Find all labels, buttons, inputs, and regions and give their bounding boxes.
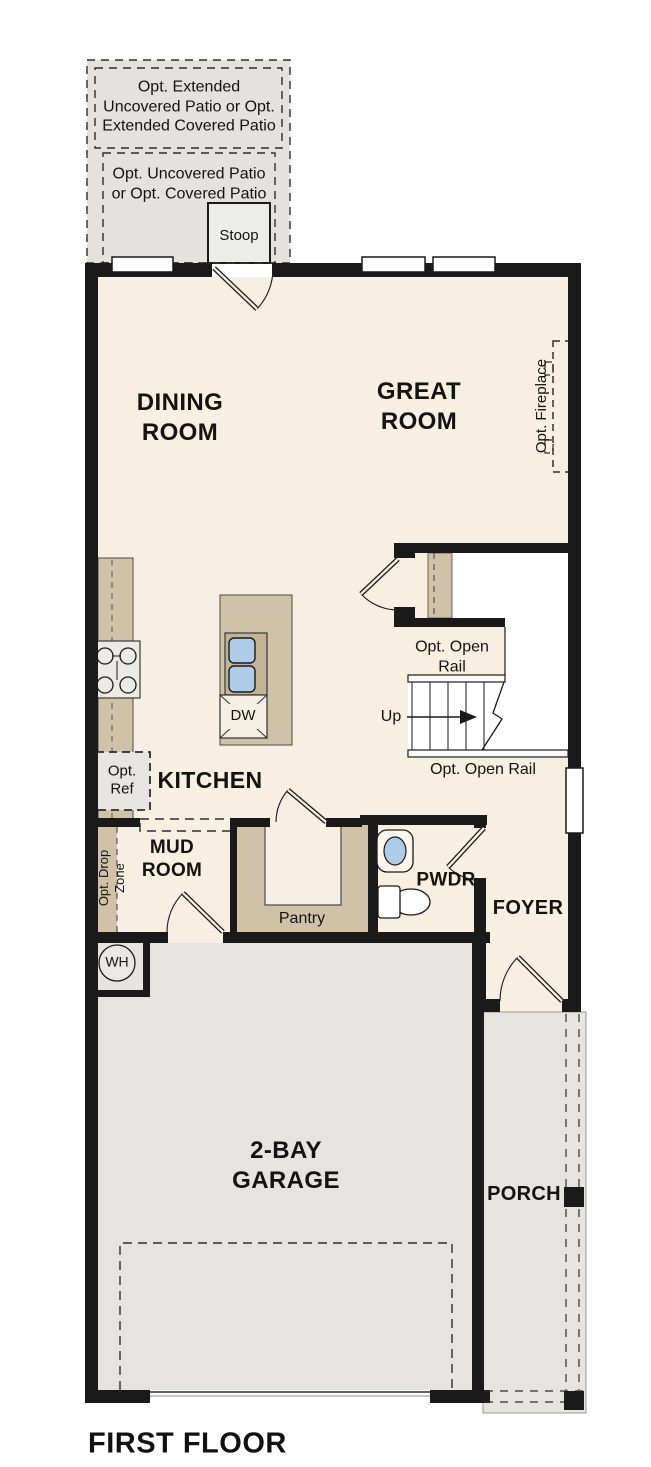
up-label: Up: [381, 707, 401, 727]
opt-drop-zone-label: Opt. Drop Zone: [96, 850, 128, 906]
pwdr-label: PWDR: [416, 868, 475, 891]
great-room-label: GREAT ROOM: [377, 377, 461, 437]
stairwell-void: [505, 553, 568, 757]
window: [362, 257, 425, 272]
porch-column: [564, 1187, 584, 1207]
stair-rail-lower: [408, 750, 568, 757]
foyer-label: FOYER: [493, 896, 563, 920]
sink-basin: [229, 666, 255, 692]
stove: [93, 641, 140, 698]
opt-patio-label: Opt. Uncovered Patio or Opt. Covered Pat…: [112, 164, 267, 203]
porch-label: PORCH: [487, 1182, 561, 1206]
kitchen-label: KITCHEN: [157, 766, 262, 794]
water-heater-label: WH: [105, 953, 128, 970]
floor-plan: Opt. Extended Uncovered Patio or Opt. Ex…: [0, 0, 651, 1467]
window: [112, 257, 173, 272]
sink-basin: [229, 638, 255, 663]
pantry-label: Pantry: [279, 909, 325, 929]
opt-ref-label: Opt. Ref: [108, 763, 136, 800]
stoop-label: Stoop: [219, 227, 258, 245]
opt-fireplace-label: Opt. Fireplace: [533, 359, 551, 453]
mud-room-label: MUD ROOM: [142, 836, 202, 882]
stair-run-area: [408, 675, 505, 757]
sink-basin: [384, 837, 406, 865]
floor-title: FIRST FLOOR: [88, 1428, 287, 1461]
stair-chase: [428, 553, 452, 618]
opt-open-rail-lower-label: Opt. Open Rail: [430, 760, 536, 780]
opt-open-rail-upper-label: Opt. Open Rail: [415, 637, 489, 676]
dining-room-label: DINING ROOM: [137, 388, 223, 448]
opt-extended-patio-label: Opt. Extended Uncovered Patio or Opt. Ex…: [102, 78, 275, 137]
garage-label: 2-BAY GARAGE: [232, 1136, 340, 1196]
porch-column: [564, 1391, 584, 1410]
floor-plan-drawing: [0, 0, 651, 1467]
porch-area: [483, 1012, 586, 1413]
window: [566, 768, 583, 833]
dishwasher-label: DW: [231, 707, 256, 725]
window: [433, 257, 495, 272]
